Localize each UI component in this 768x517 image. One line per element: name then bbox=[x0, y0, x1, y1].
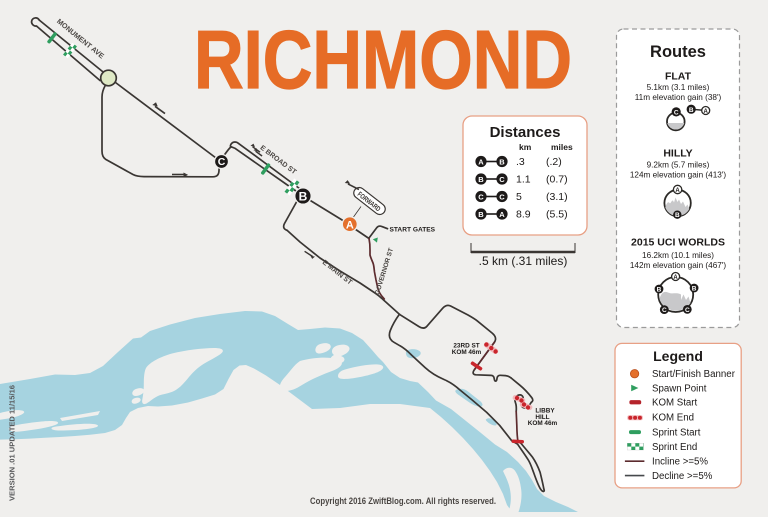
svg-text:km: km bbox=[519, 142, 532, 152]
svg-text:Sprint Start: Sprint Start bbox=[652, 428, 701, 439]
svg-text:.3: .3 bbox=[516, 156, 525, 168]
svg-text:Decline >=5%: Decline >=5% bbox=[652, 471, 713, 482]
svg-text:(3.1): (3.1) bbox=[546, 191, 568, 203]
svg-text:B: B bbox=[692, 286, 697, 293]
svg-text:Sprint End: Sprint End bbox=[652, 442, 697, 453]
svg-text:Routes: Routes bbox=[650, 43, 706, 61]
svg-text:Copyright 2016 ZwiftBlog.com.: Copyright 2016 ZwiftBlog.com. All rights… bbox=[310, 496, 496, 506]
svg-text:C: C bbox=[499, 175, 505, 184]
svg-text:Incline >=5%: Incline >=5% bbox=[652, 457, 708, 468]
svg-text:124m elevation gain (413'): 124m elevation gain (413') bbox=[630, 170, 727, 179]
svg-text:B: B bbox=[657, 287, 662, 294]
svg-text:C: C bbox=[218, 156, 226, 168]
svg-text:START GATES: START GATES bbox=[390, 227, 436, 234]
svg-text:C: C bbox=[685, 307, 690, 314]
svg-text:C: C bbox=[662, 307, 667, 314]
svg-text:C: C bbox=[674, 110, 679, 117]
svg-text:Legend: Legend bbox=[653, 348, 703, 364]
svg-text:Start/Finish Banner: Start/Finish Banner bbox=[652, 369, 736, 380]
svg-text:16.2km (10.1 miles): 16.2km (10.1 miles) bbox=[642, 251, 714, 260]
svg-text:A: A bbox=[675, 188, 680, 194]
svg-text:.5 km (.31 miles): .5 km (.31 miles) bbox=[479, 254, 568, 268]
svg-text:miles: miles bbox=[551, 142, 573, 152]
svg-text:A: A bbox=[704, 109, 709, 115]
svg-text:KOM 46m: KOM 46m bbox=[528, 420, 558, 427]
svg-text:A: A bbox=[499, 210, 505, 219]
svg-text:KOM Start: KOM Start bbox=[652, 397, 698, 408]
svg-text:B: B bbox=[299, 189, 308, 203]
svg-text:(5.5): (5.5) bbox=[546, 209, 568, 221]
svg-text:C: C bbox=[478, 193, 484, 202]
svg-text:11m elevation gain (38'): 11m elevation gain (38') bbox=[635, 93, 722, 102]
svg-text:B: B bbox=[478, 175, 484, 184]
svg-text:RICHMOND: RICHMOND bbox=[194, 13, 572, 106]
svg-text:(.2): (.2) bbox=[546, 156, 562, 168]
svg-text:142m elevation gain (467'): 142m elevation gain (467') bbox=[630, 261, 727, 270]
svg-text:A: A bbox=[346, 219, 354, 231]
svg-text:HILLY: HILLY bbox=[663, 147, 692, 159]
svg-text:VERSION .01 UPDATED 11/15/16: VERSION .01 UPDATED 11/15/16 bbox=[8, 385, 17, 501]
svg-text:B: B bbox=[478, 210, 484, 219]
svg-text:1.1: 1.1 bbox=[516, 174, 531, 186]
svg-text:KOM 46m: KOM 46m bbox=[452, 349, 482, 356]
svg-text:FLAT: FLAT bbox=[665, 70, 692, 82]
svg-text:B: B bbox=[499, 158, 505, 167]
svg-text:B: B bbox=[689, 107, 694, 114]
svg-text:C: C bbox=[499, 193, 505, 202]
svg-text:B: B bbox=[675, 212, 680, 219]
svg-text:8.9: 8.9 bbox=[516, 209, 531, 221]
svg-text:9.2km (5.7 miles): 9.2km (5.7 miles) bbox=[647, 161, 710, 170]
svg-text:(0.7): (0.7) bbox=[546, 174, 568, 186]
svg-text:Distances: Distances bbox=[490, 124, 561, 141]
svg-text:5.1km (3.1 miles): 5.1km (3.1 miles) bbox=[647, 83, 710, 92]
svg-text:2015 UCI WORLDS: 2015 UCI WORLDS bbox=[631, 236, 725, 248]
svg-text:5: 5 bbox=[516, 191, 522, 203]
svg-text:A: A bbox=[673, 275, 678, 281]
svg-text:Spawn Point: Spawn Point bbox=[652, 384, 707, 395]
svg-text:A: A bbox=[478, 158, 484, 167]
svg-text:KOM End: KOM End bbox=[652, 413, 694, 424]
